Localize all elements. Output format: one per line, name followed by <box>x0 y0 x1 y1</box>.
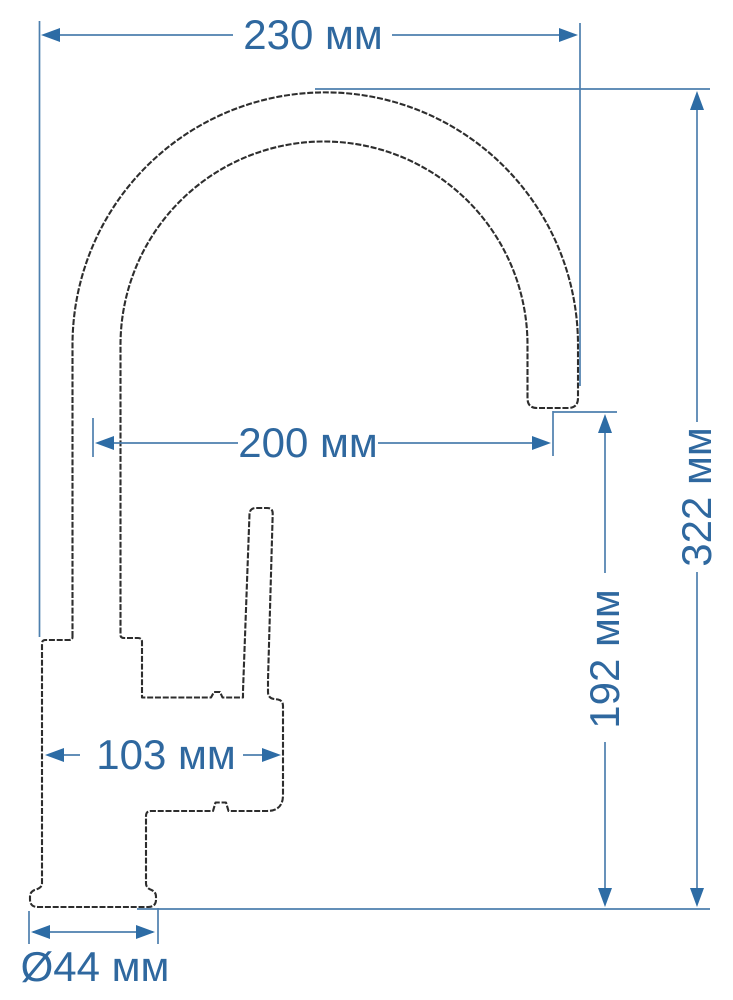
dimension-height-overall: 322 мм <box>137 89 720 909</box>
dimension-label-44: Ø44 мм <box>21 943 170 990</box>
dimension-base-diameter: Ø44 мм <box>21 908 170 990</box>
arrowhead-up-icon <box>598 414 612 433</box>
dimension-label-322: 322 мм <box>673 427 720 567</box>
dimension-body-length: 103 мм <box>45 731 281 778</box>
dimension-label-230: 230 мм <box>243 11 383 58</box>
arrowhead-right-icon <box>136 925 155 939</box>
arrowhead-down-icon <box>690 888 704 907</box>
dimension-label-103: 103 мм <box>96 731 236 778</box>
arrowhead-left-icon <box>95 436 114 450</box>
arrowhead-down-icon <box>598 888 612 907</box>
arrowhead-right-icon <box>559 28 578 42</box>
arrowhead-left-icon <box>31 925 50 939</box>
dimension-height-to-spout: 192 мм <box>553 412 628 907</box>
arrowhead-left-icon <box>45 748 64 762</box>
faucet-outline <box>30 92 578 907</box>
drawing-canvas: 230 мм 200 мм 322 мм 192 мм 103 мм <box>0 0 733 1000</box>
faucet-dimension-drawing: 230 мм 200 мм 322 мм 192 мм 103 мм <box>0 0 733 1000</box>
arrowhead-right-icon <box>532 436 551 450</box>
arrowhead-up-icon <box>690 91 704 110</box>
dimension-label-200: 200 мм <box>238 419 378 466</box>
dimension-spout-reach: 200 мм <box>93 411 553 466</box>
arrowhead-right-icon <box>262 748 281 762</box>
arrowhead-left-icon <box>41 28 60 42</box>
dimension-label-192: 192 мм <box>581 589 628 729</box>
